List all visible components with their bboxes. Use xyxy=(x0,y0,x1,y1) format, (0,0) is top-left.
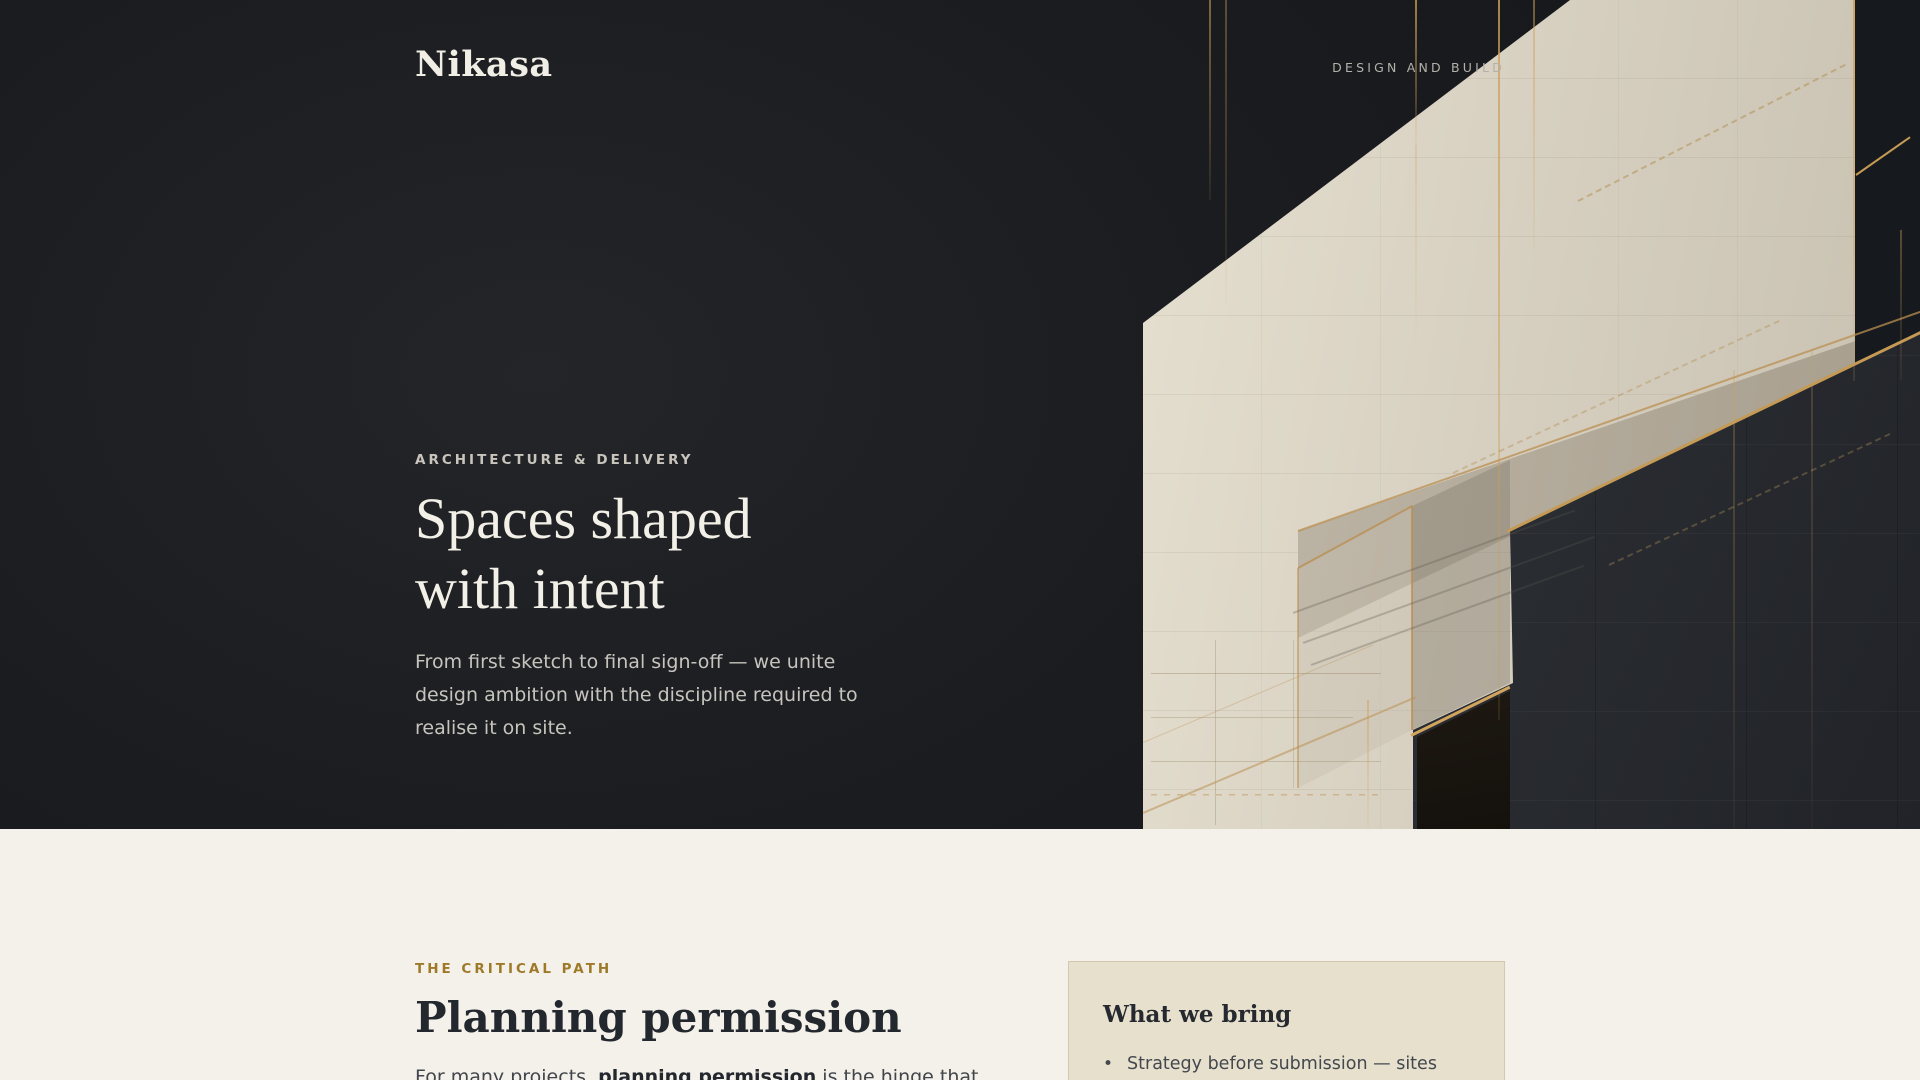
card-bullet-list: Strategy before submission — sites read xyxy=(1103,1050,1470,1080)
blueprint-detail-lines xyxy=(1151,640,1381,825)
hero-section: Nikasa DESIGN AND BUILD ARCHITECTURE & D… xyxy=(0,0,1920,829)
list-item: Strategy before submission — sites read xyxy=(1103,1050,1470,1080)
gold-vertical-line xyxy=(1900,230,1902,380)
gold-vertical-line xyxy=(1367,700,1369,829)
hero-title-line1: Spaces shaped xyxy=(415,484,885,554)
paragraph-text: For many projects, xyxy=(415,1066,598,1080)
section-paragraph: For many projects, planning permission i… xyxy=(415,1061,1015,1080)
hero-description: From first sketch to final sign-off — we… xyxy=(415,646,863,745)
gold-vertical-line xyxy=(1533,0,1535,250)
what-we-bring-card: What we bring Strategy before submission… xyxy=(1068,961,1505,1080)
hero-art-building-render xyxy=(1143,0,1920,829)
bullet-text: Strategy before submission — sites read xyxy=(1127,1050,1470,1080)
gold-vertical-line xyxy=(1853,0,1855,381)
gold-vertical-line xyxy=(1733,370,1735,829)
paragraph-bold-text: planning permission xyxy=(598,1066,816,1080)
gold-vertical-line xyxy=(1415,145,1417,335)
section-eyebrow: THE CRITICAL PATH xyxy=(415,961,1015,977)
critical-path-section: THE CRITICAL PATH Planning permission Fo… xyxy=(0,829,1920,1080)
site-tagline: DESIGN AND BUILD xyxy=(1332,60,1505,75)
page: Nikasa DESIGN AND BUILD ARCHITECTURE & D… xyxy=(0,0,1920,1080)
gold-vertical-line xyxy=(1498,0,1500,720)
hero-title: Spaces shapedwith intent xyxy=(415,484,885,624)
card-title: What we bring xyxy=(1103,1000,1470,1030)
hero-copy: ARCHITECTURE & DELIVERY Spaces shapedwit… xyxy=(415,452,885,745)
bullet-dot xyxy=(1103,1050,1113,1080)
gold-pane-side-edge xyxy=(1297,568,1299,788)
site-logo[interactable]: Nikasa xyxy=(415,44,553,85)
hero-title-line2: with intent xyxy=(415,554,885,624)
section-title: Planning permission xyxy=(415,993,1015,1043)
critical-path-copy: THE CRITICAL PATH Planning permission Fo… xyxy=(415,829,1015,1080)
gold-vertical-line xyxy=(1811,350,1813,829)
hero-eyebrow: ARCHITECTURE & DELIVERY xyxy=(415,452,885,468)
site-header: Nikasa DESIGN AND BUILD xyxy=(415,0,1505,85)
